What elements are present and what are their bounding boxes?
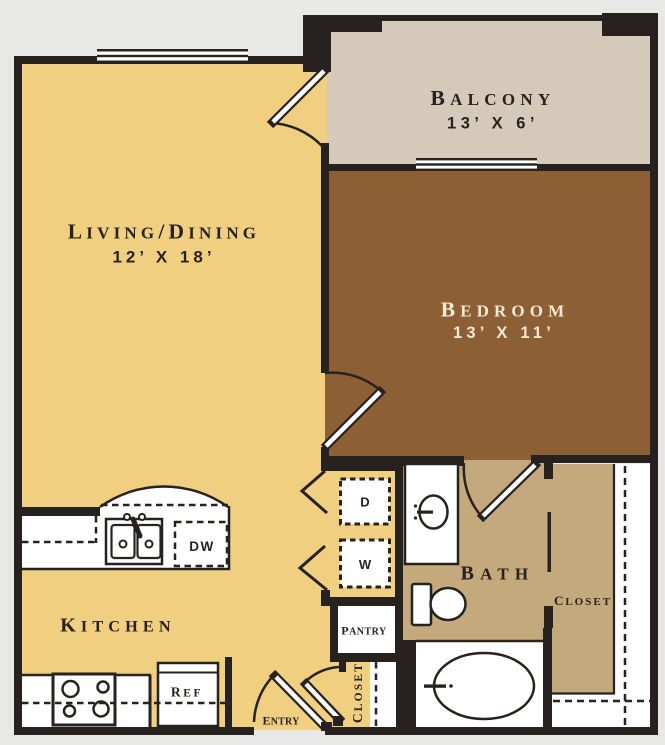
svg-text:PANTRY: PANTRY <box>341 624 387 638</box>
svg-text:BATH: BATH <box>461 563 535 585</box>
svg-text:13’ X 6’: 13’ X 6’ <box>447 114 539 132</box>
svg-text:KITCHEN: KITCHEN <box>60 614 176 636</box>
svg-text:BALCONY: BALCONY <box>430 86 555 110</box>
svg-text:DW: DW <box>189 539 215 554</box>
svg-text:D: D <box>360 494 369 509</box>
svg-text:ENTRY: ENTRY <box>262 714 300 728</box>
svg-text:W: W <box>359 557 372 572</box>
svg-text:13’ X 11’: 13’ X 11’ <box>453 324 555 342</box>
svg-text:12’ X 18’: 12’ X 18’ <box>112 248 215 267</box>
svg-text:REF: REF <box>171 684 203 699</box>
svg-text:BEDROOM: BEDROOM <box>441 297 569 321</box>
svg-text:CLOSET: CLOSET <box>554 593 612 608</box>
svg-text:CLOSET: CLOSET <box>350 662 365 723</box>
svg-text:LIVING/DINING: LIVING/DINING <box>68 220 260 244</box>
